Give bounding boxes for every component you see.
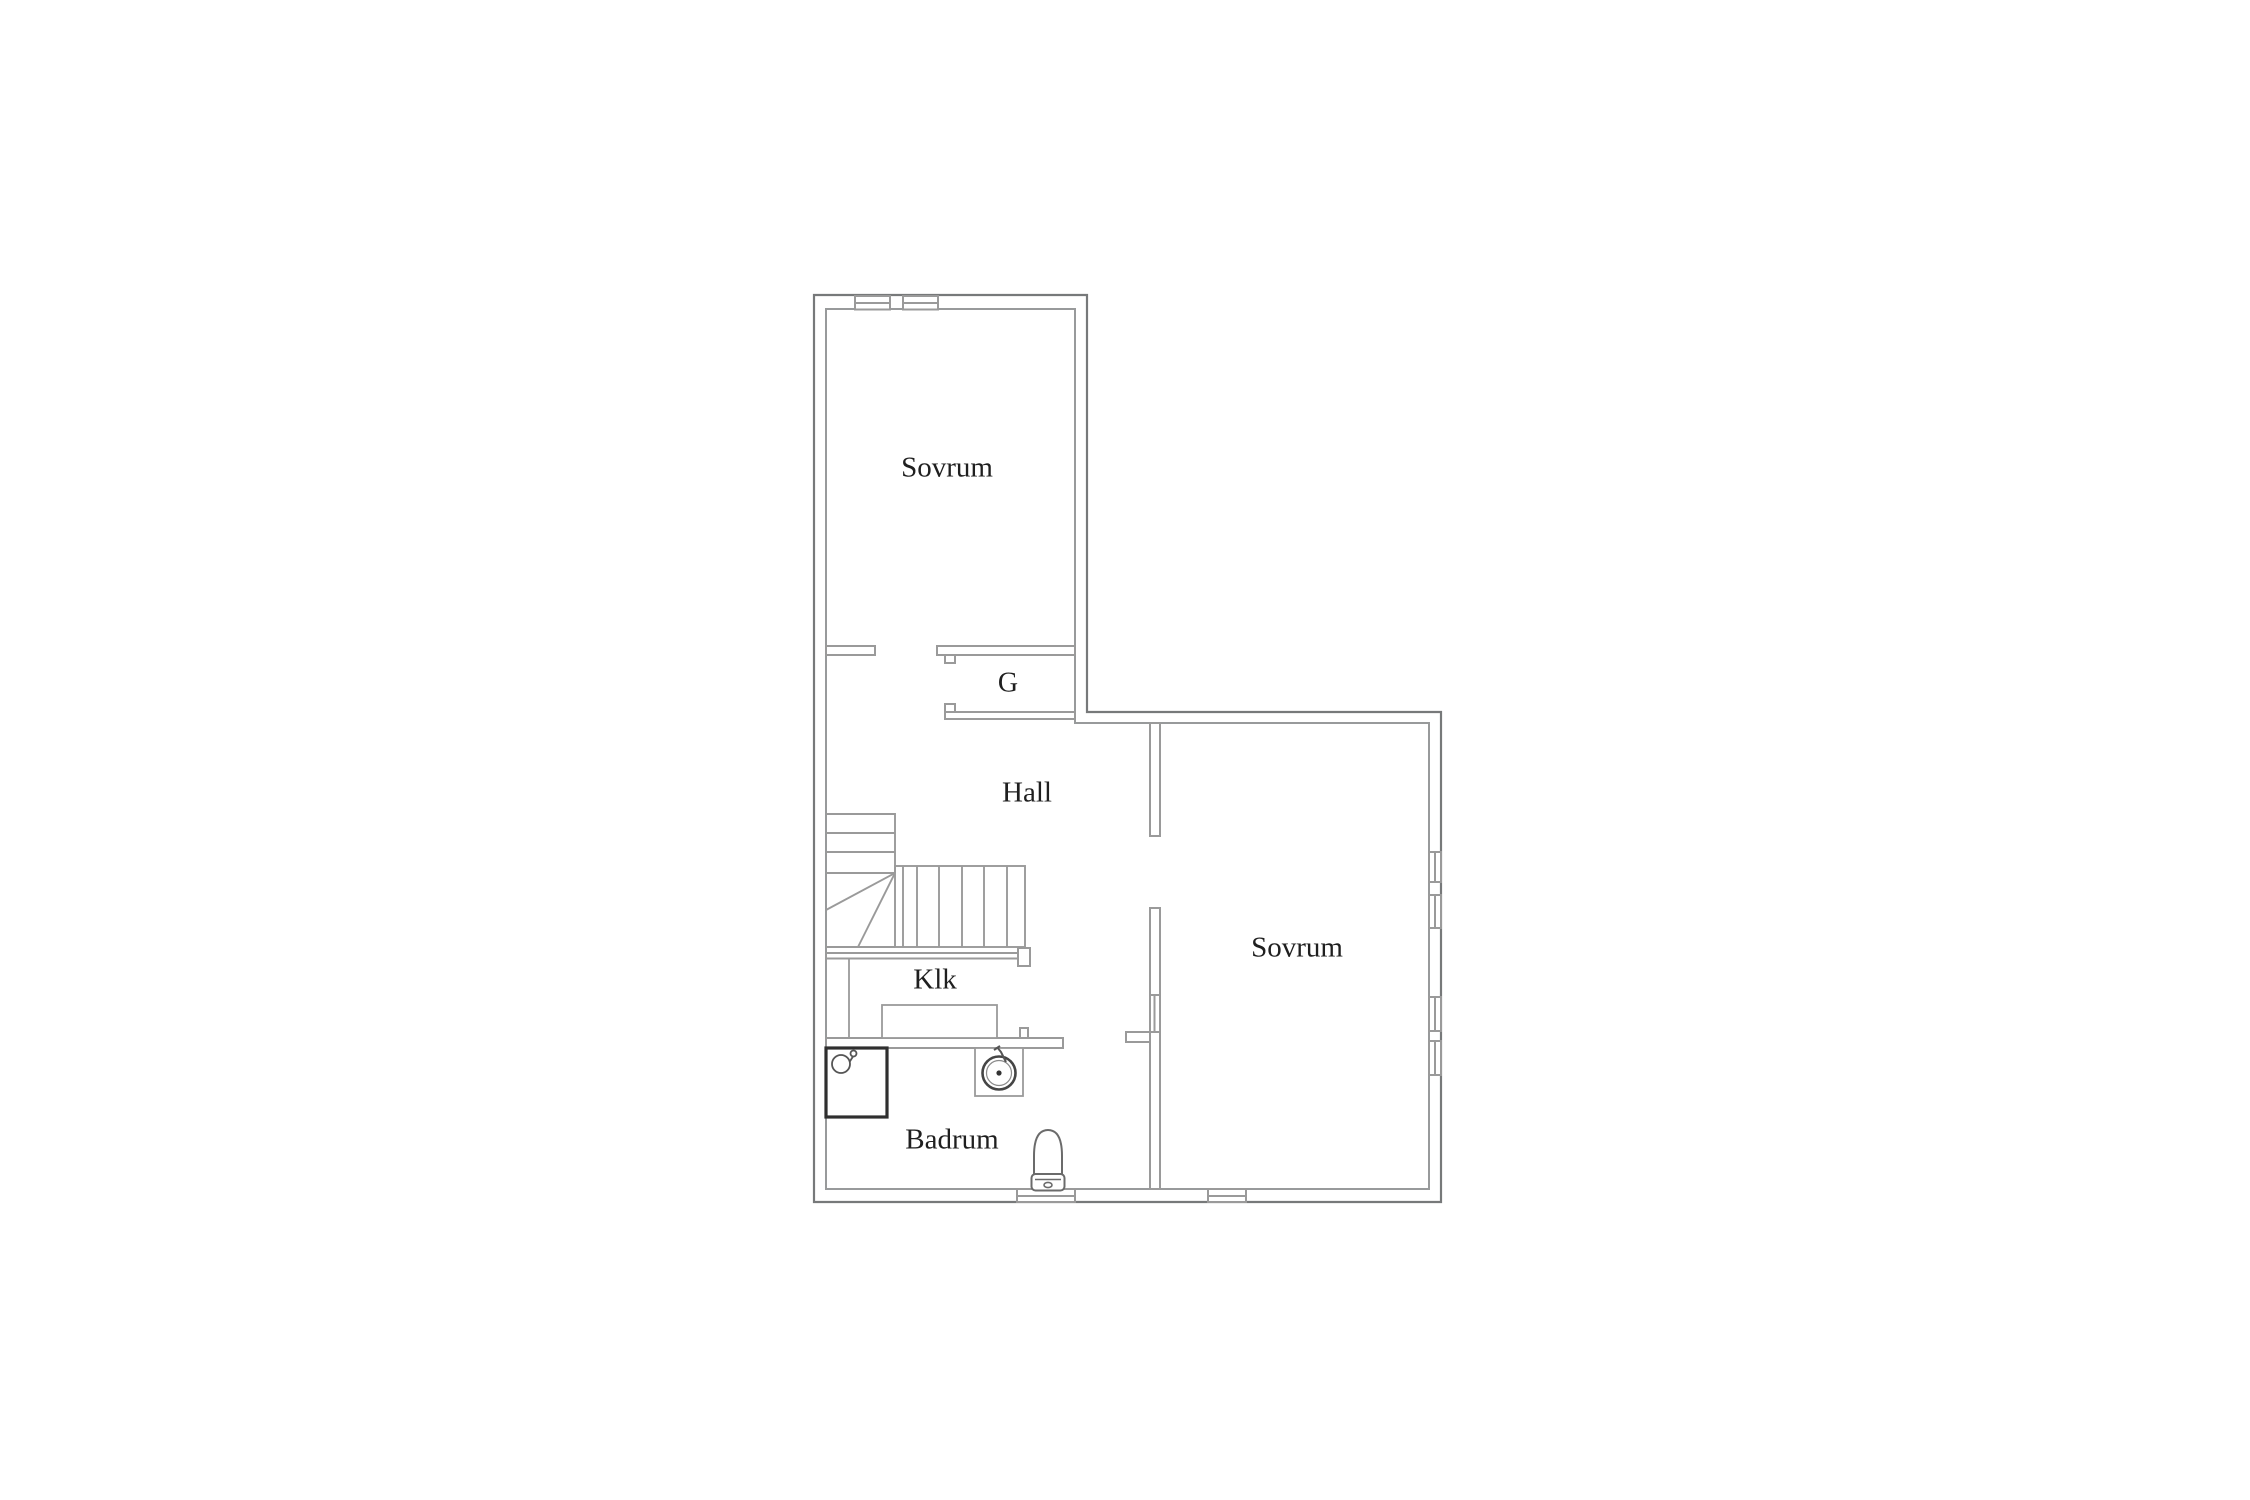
wall-klk-top-hook — [1018, 948, 1030, 966]
wardrobe — [882, 1005, 997, 1038]
wall-partition-lower — [1150, 908, 1160, 1189]
room-label-klk: Klk — [913, 964, 957, 996]
wall-bathroom-right-stub — [1126, 1032, 1150, 1042]
shower — [826, 1048, 887, 1117]
room-label-g: G — [998, 667, 1018, 698]
window-right-2 — [1429, 895, 1441, 928]
toilet-button-icon — [1044, 1182, 1052, 1187]
wall-bathroom-top-jamb — [1020, 1028, 1028, 1038]
windows — [855, 296, 1441, 1202]
toilet — [1032, 1130, 1065, 1191]
room-labels: Sovrum G Hall Sovrum Klk Badrum — [901, 452, 1343, 1156]
staircase — [826, 814, 1025, 947]
room-label-hall: Hall — [1002, 777, 1052, 809]
room-label-sovrum-top: Sovrum — [901, 452, 993, 484]
wall-g-top-jamb — [945, 655, 955, 663]
sink-drain-icon — [996, 1070, 1001, 1075]
window-bottom-bedroom — [1208, 1189, 1246, 1202]
window-right-1 — [1429, 852, 1441, 882]
window-top-2 — [903, 296, 938, 310]
room-label-badrum: Badrum — [905, 1124, 999, 1156]
wall-partition-upper — [1150, 723, 1160, 836]
floorplan-canvas: Sovrum G Hall Sovrum Klk Badrum — [0, 0, 2250, 1500]
window-partition — [1150, 995, 1160, 1032]
sink — [975, 1046, 1023, 1096]
floorplan-page: Sovrum G Hall Sovrum Klk Badrum — [0, 0, 2250, 1500]
wall-bedroom1-left-stub — [826, 646, 875, 655]
window-right-3 — [1429, 997, 1441, 1031]
wall-g-bottom — [945, 712, 1075, 719]
exterior-walls — [814, 295, 1441, 1202]
room-label-sovrum-right: Sovrum — [1251, 932, 1343, 964]
wall-g-bottom-jamb — [945, 704, 955, 712]
window-top-1 — [855, 296, 890, 310]
window-right-4 — [1429, 1041, 1441, 1075]
wall-g-top — [937, 646, 1075, 655]
toilet-bowl — [1034, 1130, 1062, 1174]
wall-klk-top — [826, 953, 1018, 959]
